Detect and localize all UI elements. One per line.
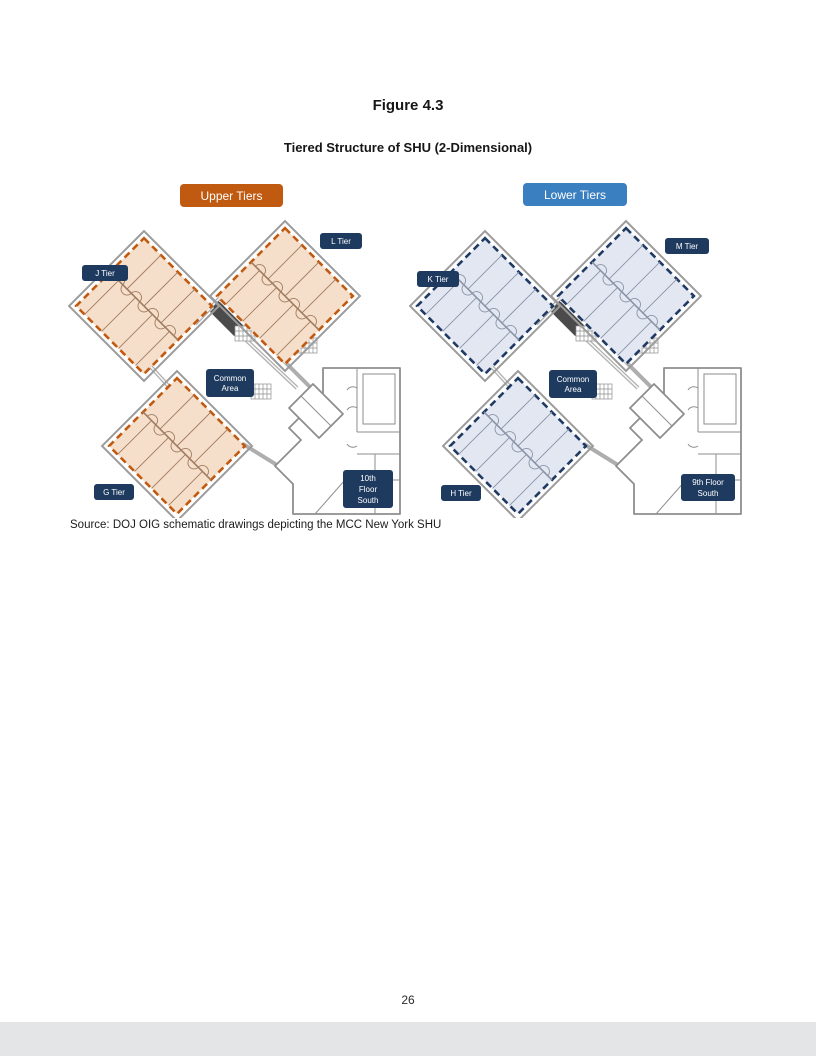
svg-text:K Tier: K Tier [428,275,449,284]
figure-title: Tiered Structure of SHU (2-Dimensional) [0,140,816,155]
j-tier-label: J Tier [82,265,128,281]
svg-text:10th: 10th [360,474,376,483]
m-tier-label: M Tier [665,238,709,254]
lower-common-area-label: Common Area [549,370,597,398]
floorplan-svg: J Tier L Tier Common Area G Tier 10th Fl… [55,218,755,518]
svg-text:M Tier: M Tier [676,242,699,251]
footer-bar [0,1022,816,1056]
figure-label: Figure 4.3 [0,97,816,114]
upper-tiers-badge: Upper Tiers [180,184,283,207]
svg-text:9th Floor: 9th Floor [692,478,724,487]
svg-text:Common: Common [557,375,589,384]
svg-text:Area: Area [565,385,582,394]
source-note: Source: DOJ OIG schematic drawings depic… [70,519,441,531]
svg-text:South: South [358,496,379,505]
page-number: 26 [0,993,816,1007]
k-tier-label: K Tier [417,271,459,287]
upper-tiers-panel: J Tier L Tier Common Area G Tier 10th Fl… [69,221,400,518]
svg-text:South: South [698,489,719,498]
svg-text:J Tier: J Tier [95,269,115,278]
svg-text:L Tier: L Tier [331,237,351,246]
l-tier-label: L Tier [320,233,362,249]
svg-text:Floor: Floor [359,485,378,494]
svg-text:G Tier: G Tier [103,488,125,497]
h-tier-label: H Tier [441,485,481,501]
svg-text:Common: Common [214,374,246,383]
ninth-floor-south-label: 9th Floor South [681,474,735,501]
tenth-floor-south-label: 10th Floor South [343,470,393,508]
svg-text:H Tier: H Tier [450,489,472,498]
svg-text:Area: Area [222,384,239,393]
lower-tiers-panel: K Tier M Tier Common Area H Tier 9th Flo… [410,221,741,518]
lower-tiers-badge: Lower Tiers [523,183,627,206]
g-tier-label: G Tier [94,484,134,500]
shu-schematic-diagrams: J Tier L Tier Common Area G Tier 10th Fl… [55,218,755,518]
upper-common-area-label: Common Area [206,369,254,397]
